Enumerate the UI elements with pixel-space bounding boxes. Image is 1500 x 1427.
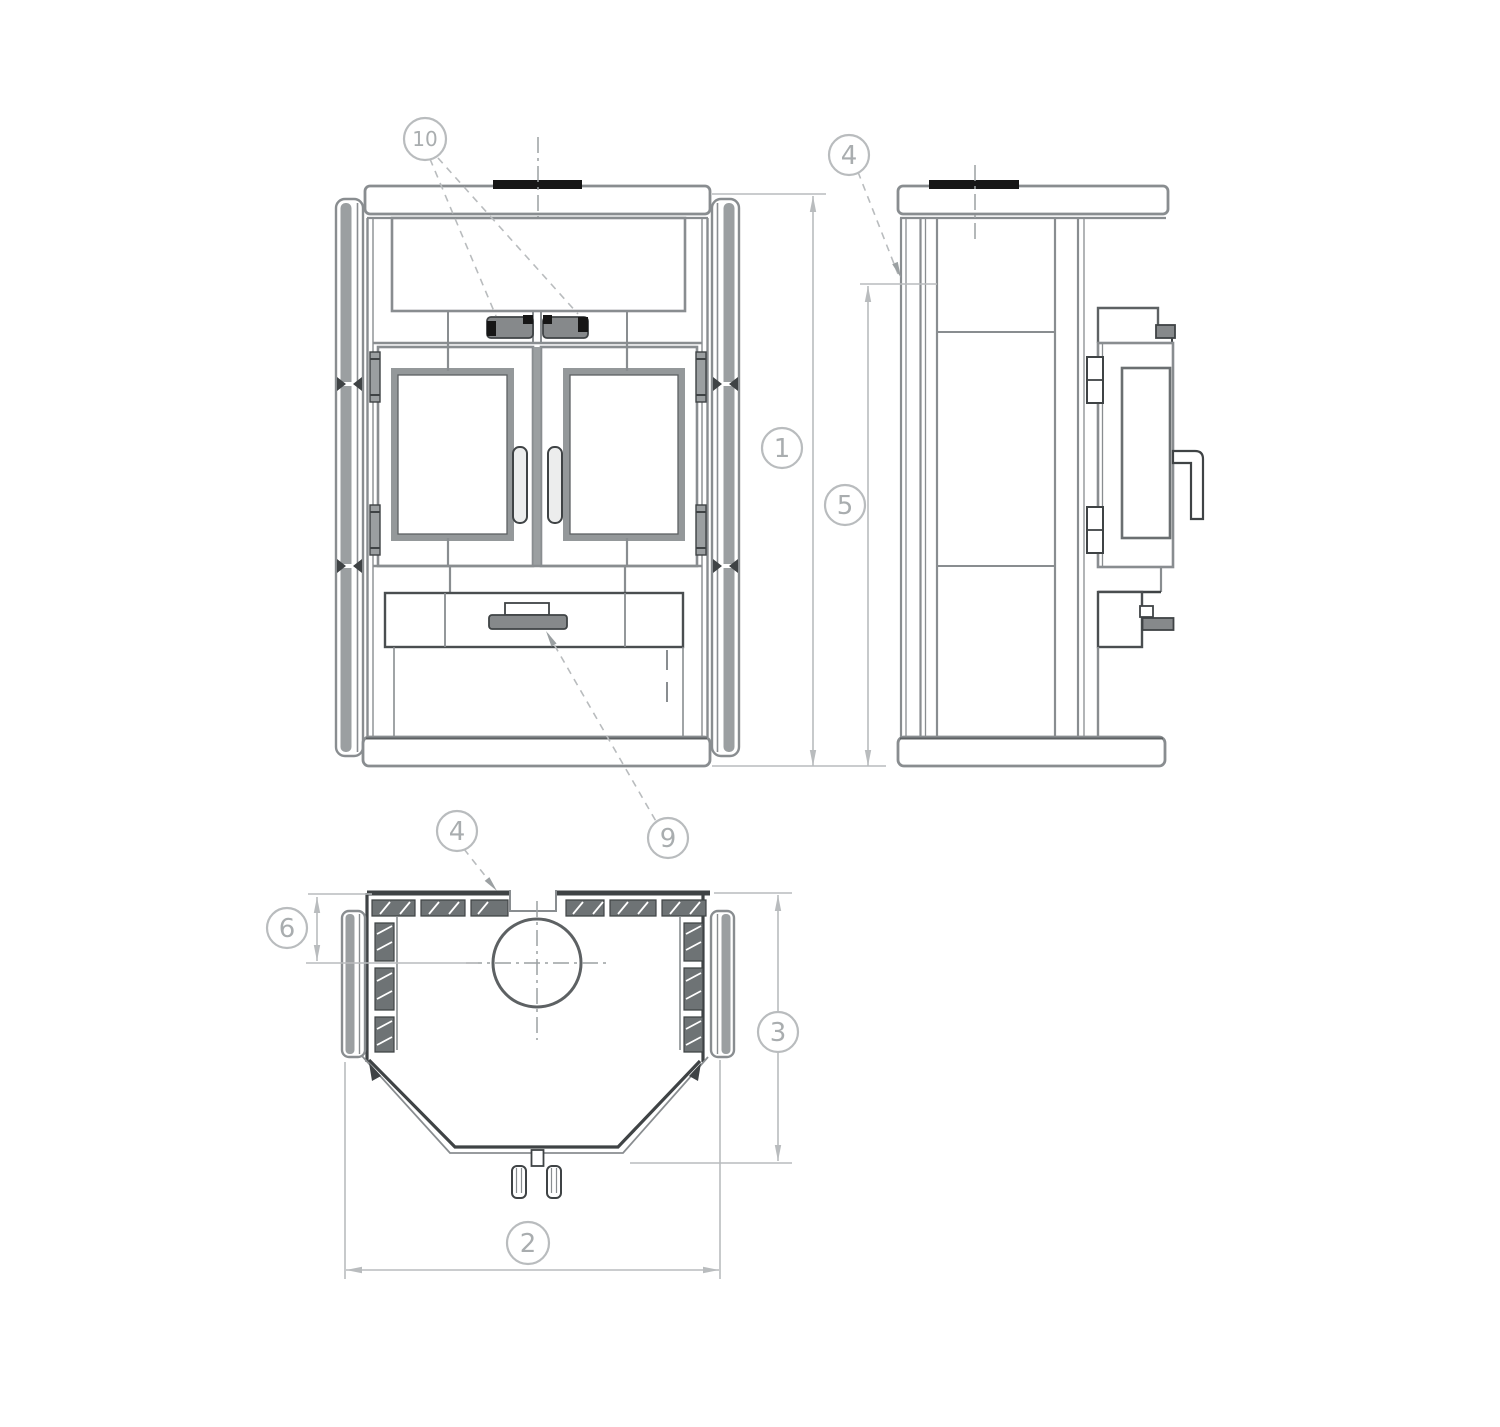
vent-slider-left (487, 315, 533, 338)
flue-collar-side (929, 180, 1019, 189)
drawer-connectors (450, 566, 625, 593)
callout-4-top-back-panel: 4 (437, 811, 477, 851)
callout-label: 1 (774, 434, 791, 464)
side-panel-left-top (342, 911, 365, 1057)
vent-slider-right (543, 315, 588, 338)
side-door (1087, 308, 1203, 567)
callout-label: 10 (412, 127, 437, 151)
bottom-plate-side (898, 737, 1165, 766)
floor-pins (512, 1166, 561, 1198)
callout-label: 5 (837, 491, 854, 521)
door-left (370, 343, 533, 566)
air-control-knob (1156, 325, 1175, 338)
door-hinge-side (1087, 357, 1103, 403)
lower-inner-edges (394, 647, 683, 737)
door-window-left (395, 372, 511, 538)
callout-3-depth: 3 (758, 1012, 798, 1052)
callout-4-side-top-corner: 4 (829, 135, 869, 175)
callout-5-body-height: 5 (825, 485, 865, 525)
side-drawer-handle (1143, 618, 1174, 630)
tile-column-right (712, 199, 739, 756)
door-center-gap (534, 347, 541, 566)
top-plate-side (898, 186, 1168, 218)
door-hinge (696, 505, 706, 555)
callout-1-total-height: 1 (762, 428, 802, 468)
side-panel-joints (937, 332, 1055, 566)
callout-10-front-vents: 10 (404, 118, 446, 160)
door-hinge (370, 505, 380, 555)
vent-band-dividers (448, 311, 627, 343)
door-hinge (370, 352, 380, 402)
ash-drawer-front (385, 593, 683, 647)
door-handle-right (548, 447, 562, 523)
callout-label: 4 (841, 141, 858, 171)
right-tile-band (684, 923, 703, 1052)
callout-2-width: 2 (507, 1222, 549, 1264)
door-handle-left (513, 447, 527, 523)
door-hinge-side (1087, 507, 1103, 553)
side-panel-right-top (711, 911, 734, 1057)
side-ash-drawer (1098, 567, 1174, 737)
left-tile-band (375, 923, 394, 1052)
callout-9-drawer-handle: 9 (648, 818, 688, 858)
stove-technical-drawing: 10 4 1 5 4 9 6 3 (0, 0, 1500, 1427)
callout-label: 9 (660, 824, 677, 854)
top-view (342, 890, 734, 1198)
flue-notch (510, 890, 556, 911)
side-door-handle (1173, 451, 1203, 519)
tile-column-left (336, 199, 363, 756)
side-body-inner-edges (906, 218, 1084, 737)
side-view (898, 165, 1203, 766)
side-body-edges (901, 218, 1078, 737)
side-door-glass (1122, 368, 1170, 538)
callout-label: 6 (279, 914, 296, 944)
callout-label: 2 (520, 1229, 537, 1259)
front-contour-inner (369, 1060, 700, 1147)
front-view (336, 137, 739, 766)
door-hinge (696, 352, 706, 402)
front-center-tab (532, 1150, 544, 1166)
chamfer-corner-marks (369, 1063, 701, 1081)
upper-panel (392, 218, 685, 311)
callout-6-flue-offset: 6 (267, 908, 307, 948)
bottom-plate-front (363, 737, 710, 766)
technical-drawing-canvas: 10 4 1 5 4 9 6 3 (0, 0, 1500, 1427)
door-window-right (567, 372, 682, 538)
callout-label: 3 (770, 1018, 787, 1048)
callout-label: 4 (449, 817, 466, 847)
door-right (541, 343, 706, 566)
